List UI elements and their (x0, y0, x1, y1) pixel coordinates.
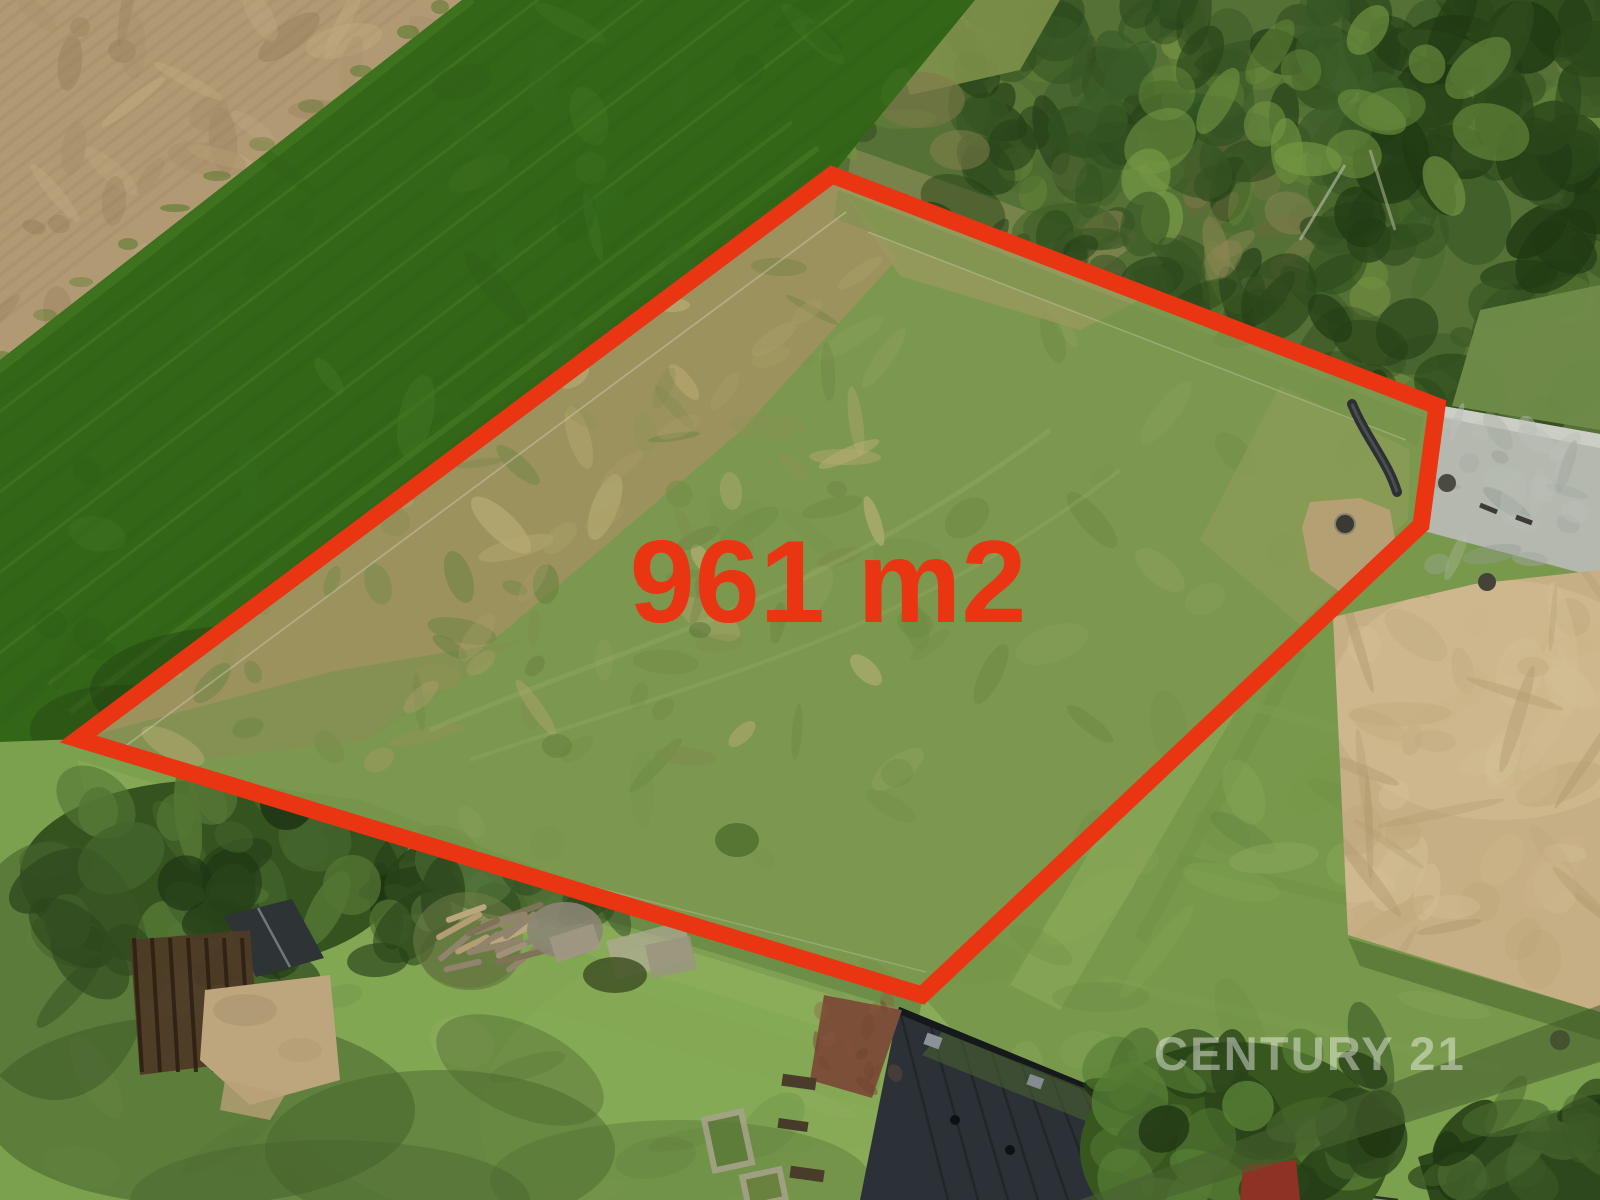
svg-text:961 m2: 961 m2 (630, 516, 1027, 647)
svg-text:CENTURY 21: CENTURY 21 (1154, 1027, 1466, 1080)
